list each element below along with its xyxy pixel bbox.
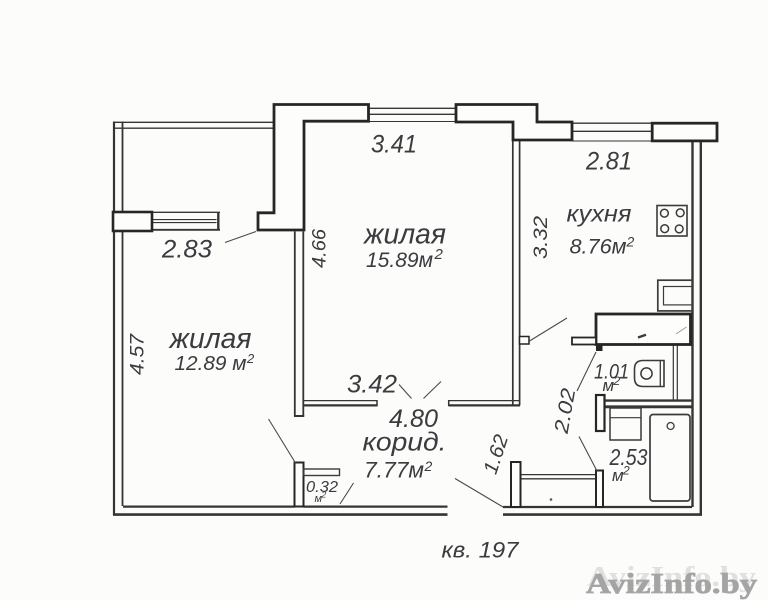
svg-text:2: 2 — [434, 246, 444, 263]
svg-text:2: 2 — [626, 234, 635, 250]
svg-text:2: 2 — [424, 458, 433, 474]
svg-text:2.83: 2.83 — [161, 236, 212, 264]
svg-text:2: 2 — [613, 374, 621, 388]
svg-text:жилая: жилая — [362, 219, 446, 251]
svg-text:2.02: 2.02 — [551, 387, 581, 436]
svg-text:жилая: жилая — [168, 323, 252, 355]
svg-text:корид.: корид. — [363, 427, 447, 457]
svg-text:кухня: кухня — [567, 201, 632, 227]
svg-text:2: 2 — [622, 464, 630, 478]
svg-text:1.62: 1.62 — [480, 432, 513, 477]
svg-text:15.89м: 15.89м — [366, 248, 433, 272]
svg-text:AvizInfo.by: AvizInfo.by — [586, 569, 757, 600]
svg-text:7.77м: 7.77м — [364, 458, 424, 483]
svg-text:4.57: 4.57 — [127, 333, 149, 375]
svg-text:2.81: 2.81 — [585, 148, 632, 176]
svg-text:8.76м: 8.76м — [570, 235, 627, 259]
svg-text:2: 2 — [321, 490, 327, 500]
svg-text:12.89 м: 12.89 м — [175, 353, 247, 375]
svg-text:3.32: 3.32 — [530, 216, 552, 259]
svg-text:3.41: 3.41 — [371, 131, 417, 159]
svg-text:4.66: 4.66 — [309, 229, 331, 268]
svg-text:3.42: 3.42 — [347, 371, 397, 399]
svg-text:кв. 197: кв. 197 — [442, 538, 520, 563]
svg-text:2: 2 — [246, 351, 255, 366]
